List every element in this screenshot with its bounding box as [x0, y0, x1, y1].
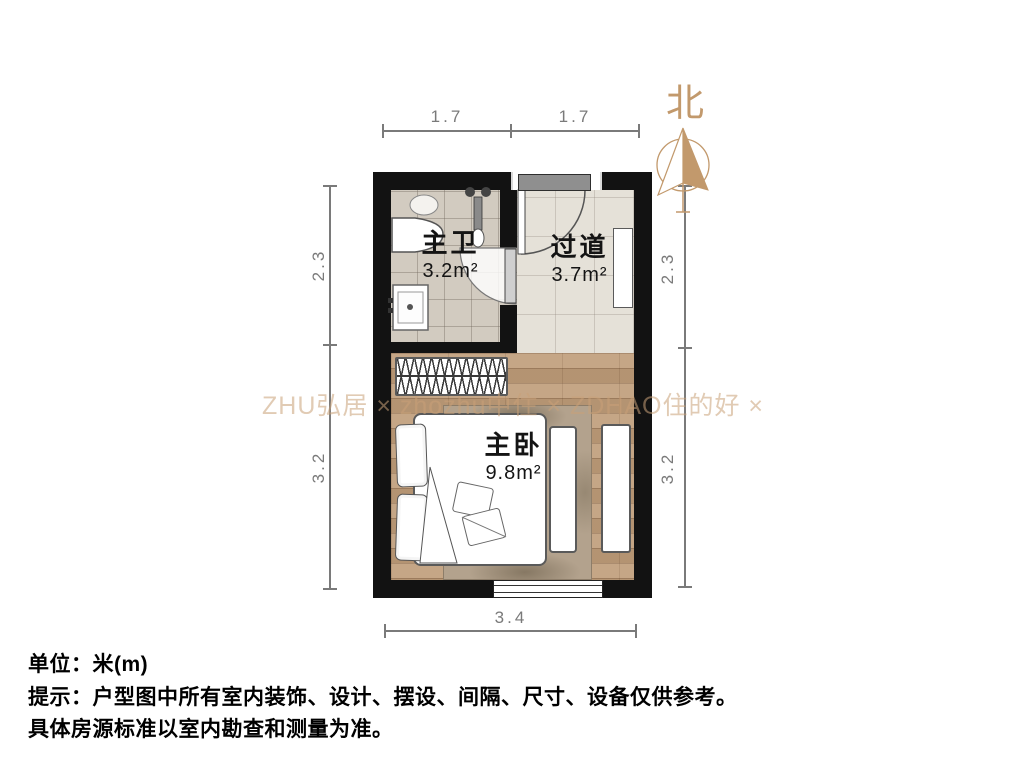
- sink-tap: [388, 308, 393, 313]
- floorplan-page: 主卫 3.2m² 过道 3.7m² 主卧 9.8m² 1.7 1.7 3.4 2…: [0, 0, 1024, 768]
- room-label-hallway: 过道 3.7m²: [532, 232, 627, 288]
- dim-left-2: 3.2: [309, 437, 329, 497]
- dim-tick: [323, 344, 337, 346]
- bedroom-window: [493, 580, 603, 598]
- shower-bar: [474, 197, 482, 230]
- bathroom-area: 3.2m²: [403, 258, 498, 284]
- dim-tick: [678, 586, 692, 588]
- dim-top-1: 1.7: [417, 107, 477, 127]
- blanket-fold: [420, 467, 457, 563]
- dim-tick: [323, 588, 337, 590]
- sink-drain: [407, 304, 413, 310]
- shower-valve: [465, 187, 475, 197]
- shower-valve: [481, 187, 491, 197]
- room-label-bathroom: 主卫 3.2m²: [403, 228, 498, 284]
- dim-tick: [323, 185, 337, 187]
- dim-tick: [678, 347, 692, 349]
- entry-door-leaf: [518, 190, 525, 254]
- hallway-name: 过道: [532, 232, 627, 262]
- bathroom-door-leaf: [505, 249, 516, 303]
- footer-unit-line: 单位：米(m): [28, 648, 148, 678]
- footer-disclaimer-line2: 具体房源标准以室内勘查和测量为准。: [28, 713, 394, 743]
- watermark: ZHU弘居 × zhozhu中住 × ZDHAO住的好 ×: [262, 386, 764, 422]
- bedroom-area: 9.8m²: [466, 460, 561, 486]
- toilet-tank: [410, 195, 438, 215]
- hallway-area: 3.7m²: [532, 262, 627, 288]
- room-label-bedroom: 主卧 9.8m²: [466, 430, 561, 486]
- dim-tick: [635, 624, 637, 638]
- dim-tick: [638, 124, 640, 138]
- dim-tick: [382, 124, 384, 138]
- bedroom-name: 主卧: [466, 430, 561, 460]
- dim-top-2: 1.7: [545, 107, 605, 127]
- dim-bottom-1: 3.4: [481, 608, 541, 628]
- bathroom-name: 主卫: [403, 228, 498, 258]
- sink-tap: [388, 298, 393, 303]
- dim-tick: [384, 624, 386, 638]
- dim-right-2: 3.2: [658, 438, 678, 498]
- entry-door-panel: [518, 174, 591, 191]
- dim-line-bottom: [385, 630, 637, 632]
- footer-disclaimer-line1: 提示：户型图中所有室内装饰、设计、摆设、间隔、尺寸、设备仅供参考。: [28, 681, 738, 711]
- dim-tick: [510, 124, 512, 138]
- dim-right-1: 2.3: [658, 238, 678, 298]
- dim-left-1: 2.3: [309, 235, 329, 295]
- compass-north-icon: [645, 62, 735, 222]
